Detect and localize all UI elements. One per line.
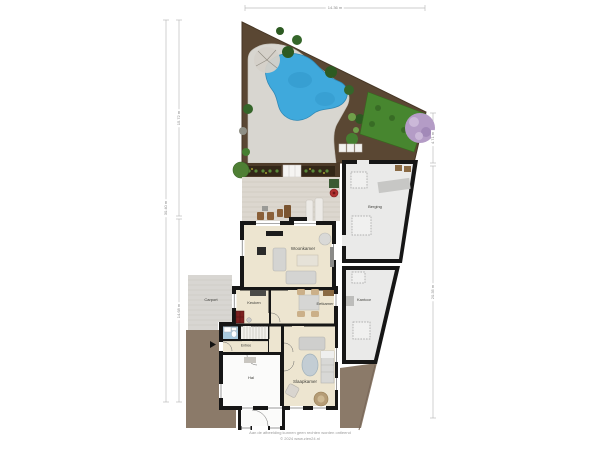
stepping-stones (339, 144, 362, 152)
storage-box (329, 179, 339, 188)
label-entree: Entree (241, 344, 251, 348)
carport (188, 275, 232, 330)
label-woonkamer: Woonkamer (291, 247, 315, 252)
dim-left-inner-top: 15.72 m (177, 109, 181, 127)
stairs (241, 326, 268, 339)
footer-disclaimer: Aan de afbeelding kunnen geen rechten wo… (249, 431, 351, 435)
dim-top: 14.36 m (326, 6, 344, 10)
garden-steps (283, 165, 301, 177)
dim-right-top: 4.71 m (431, 130, 435, 146)
dim-left-inner-bottom: 14.68 m (177, 302, 181, 320)
terrace-bush (233, 162, 249, 178)
floor-plan-page: Woonkamer Eetkamer Keuken Slaapkamer Hal… (0, 0, 600, 450)
label-keuken: Keuken (247, 301, 261, 305)
terrace (233, 162, 340, 226)
label-berging: Berging (368, 205, 382, 209)
garden (239, 22, 435, 163)
porch (241, 410, 282, 426)
dim-left-outer: 30.40 m (164, 199, 168, 217)
berging-building (342, 160, 418, 263)
dim-right-bottom: 20.35 m (431, 283, 435, 301)
label-slaapkamer: Slaapkamer (293, 380, 317, 385)
room-corridor (269, 326, 281, 352)
label-hal: Hal (248, 376, 254, 380)
label-kantoor: Kantoor (357, 298, 371, 302)
footer-copyright: © 2024 www.zien24.nl (280, 437, 320, 441)
front-garden (340, 363, 377, 428)
label-eetkamer: Eetkamer (316, 302, 333, 306)
hal-doormat (244, 357, 256, 363)
house (210, 217, 338, 430)
kantoor-building (342, 266, 400, 364)
label-carport: Carport (204, 298, 217, 302)
